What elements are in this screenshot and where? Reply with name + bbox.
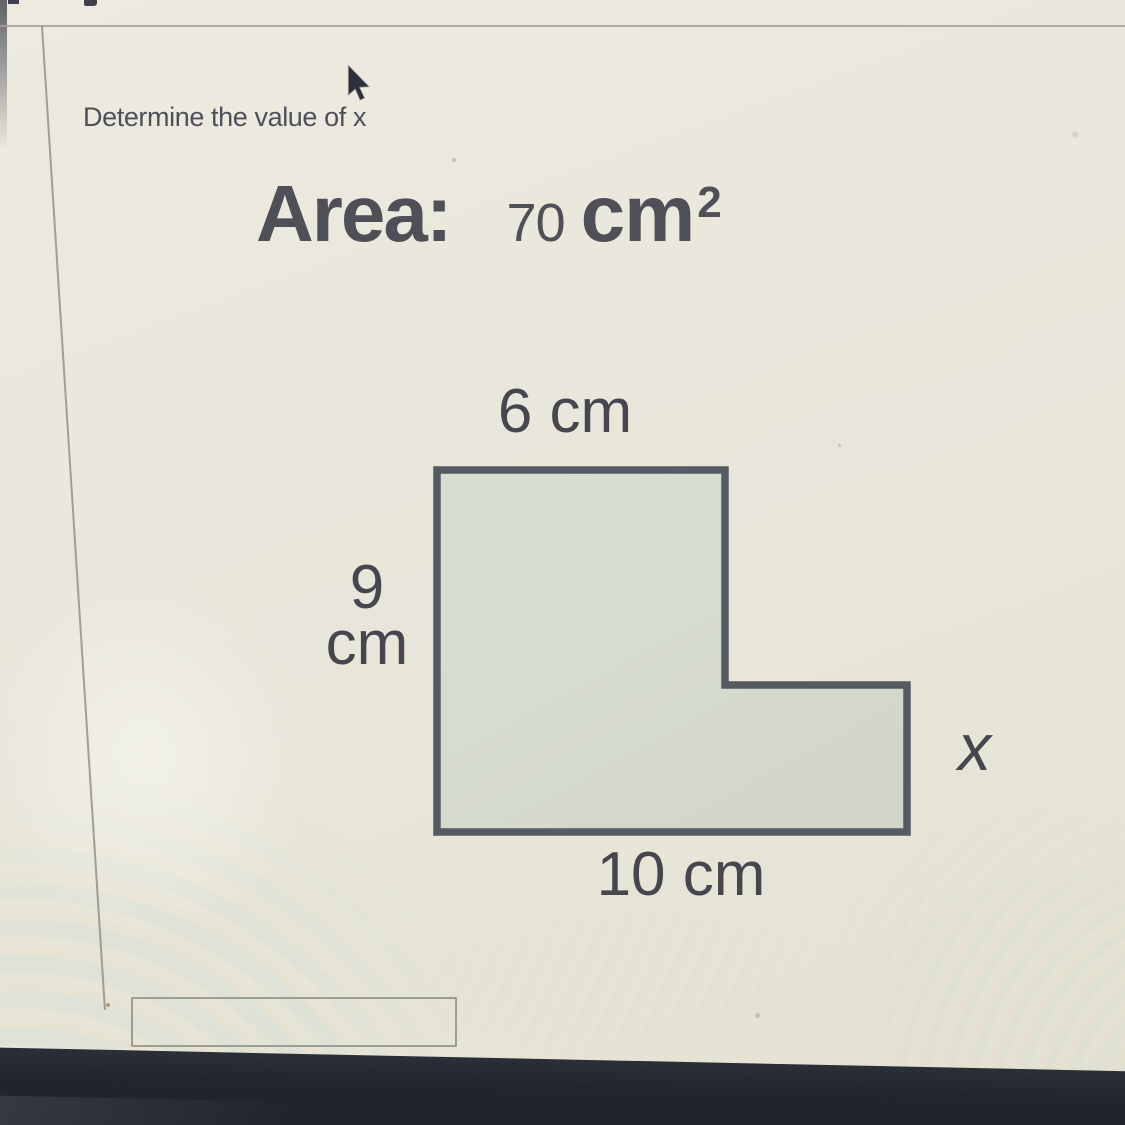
desk-sheen bbox=[0, 1095, 449, 1125]
question-prompt: Determine the value of x bbox=[83, 102, 366, 133]
quiz-screen: Determine the value of x Area: 70 cm 2 6… bbox=[0, 0, 1125, 1125]
dust-speck bbox=[452, 158, 456, 162]
left-divider bbox=[41, 26, 106, 1010]
area-value: 70 bbox=[507, 196, 565, 250]
dust-speck bbox=[1072, 132, 1078, 137]
screen-artifact bbox=[8, 0, 19, 4]
dust-speck bbox=[838, 444, 841, 447]
screen-artifact bbox=[84, 0, 97, 6]
area-exponent: 2 bbox=[697, 181, 721, 225]
top-divider bbox=[0, 25, 1125, 27]
dust-speck bbox=[755, 1013, 760, 1018]
area-heading: Area: 70 cm 2 bbox=[256, 174, 722, 254]
answer-input[interactable] bbox=[131, 997, 457, 1047]
dimension-label-top: 6 cm bbox=[421, 381, 709, 443]
dimension-label-x: x bbox=[958, 714, 991, 780]
dimension-label-left-unit: cm bbox=[307, 616, 427, 672]
dimension-label-left: 9 cm bbox=[307, 560, 427, 672]
dimension-label-left-value: 9 bbox=[307, 560, 427, 616]
screen-edge-shadow bbox=[0, 0, 7, 150]
area-label: Area: bbox=[256, 174, 451, 254]
dimension-label-bottom: 10 cm bbox=[546, 844, 816, 906]
desk-background bbox=[0, 1047, 1125, 1125]
l-shape-polygon bbox=[433, 466, 911, 836]
area-unit: cm bbox=[581, 174, 695, 254]
glare-overlay bbox=[0, 475, 410, 1035]
dust-speck bbox=[106, 1003, 110, 1007]
arrow-cursor-icon bbox=[346, 64, 378, 108]
